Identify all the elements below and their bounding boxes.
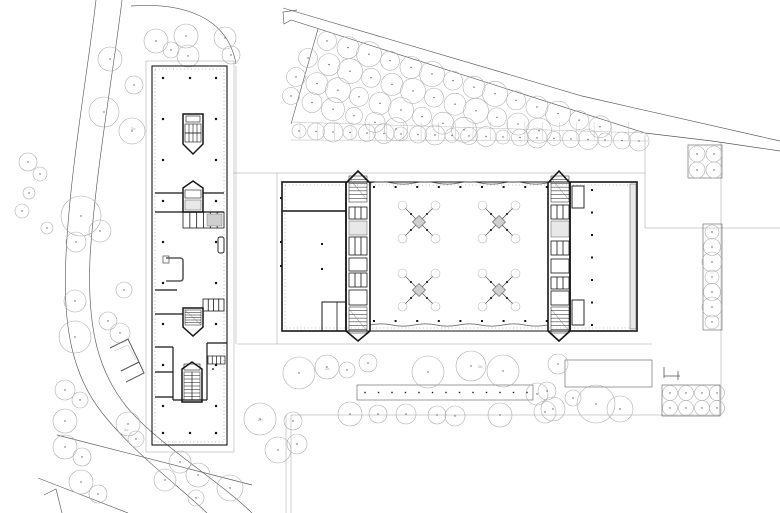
svg-text:2b: 2b: [478, 364, 483, 369]
svg-text:2o: 2o: [131, 126, 136, 131]
site-plan-document: 2o2b2b2o2o: [0, 0, 780, 513]
layer-hall-building: [280, 171, 637, 341]
layer-grove: [283, 29, 650, 151]
svg-text:2o: 2o: [325, 366, 330, 371]
layer-boundaries: [146, 61, 780, 513]
layer-trees-west: [15, 24, 307, 506]
svg-text:2b: 2b: [258, 417, 263, 422]
layer-trees-south: [283, 351, 633, 427]
layer-trees-east: [663, 146, 725, 416]
site-plan-svg: 2o2b2b2o2o: [0, 0, 780, 513]
layer-roads: [38, 0, 780, 513]
layer-structures: [110, 339, 144, 382]
layer-tower-building: [152, 66, 227, 445]
svg-text:2o: 2o: [124, 427, 129, 432]
layer-tree-labels: 2o2b2b2o2o: [124, 126, 483, 432]
